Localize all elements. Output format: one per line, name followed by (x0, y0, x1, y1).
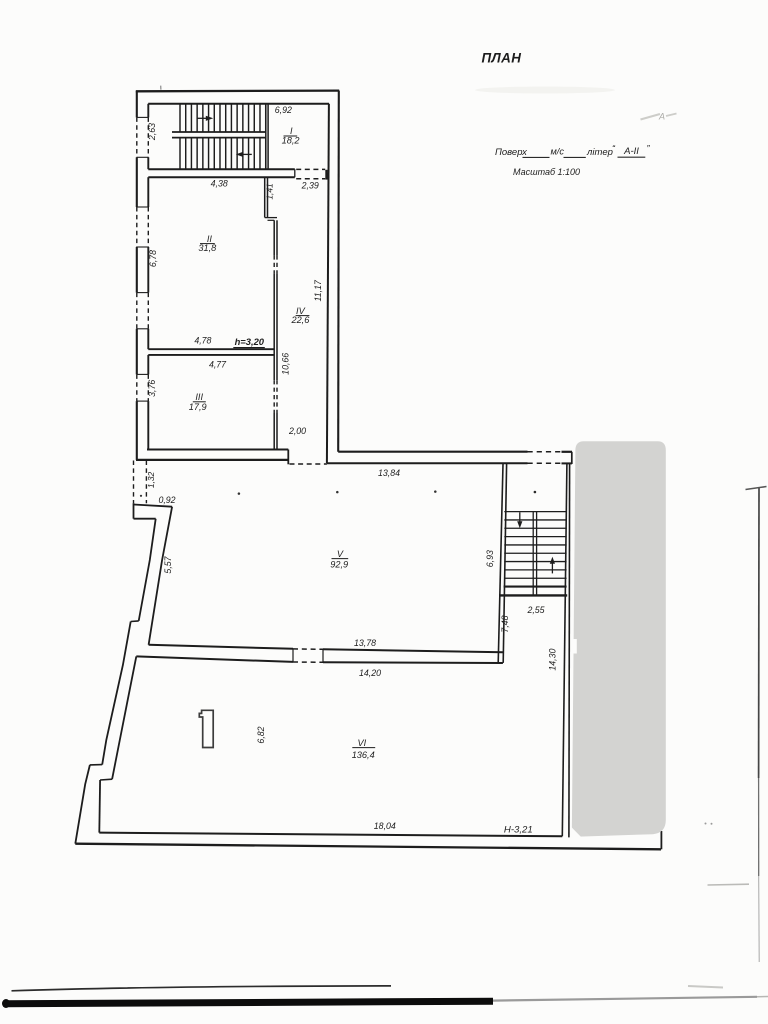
svg-text:м/с: м/с (551, 147, 565, 157)
svg-text:літер: літер (586, 147, 613, 158)
svg-text:13,78: 13,78 (354, 638, 376, 648)
svg-text:4,77: 4,77 (209, 359, 227, 369)
svg-text:31,8: 31,8 (198, 243, 217, 253)
svg-text:1,32: 1,32 (146, 472, 156, 489)
svg-text:2,55: 2,55 (526, 605, 544, 615)
svg-text:А: А (658, 112, 665, 122)
svg-text:V: V (337, 549, 344, 559)
svg-text:92,9: 92,9 (330, 560, 348, 570)
svg-text:”: ” (647, 144, 651, 154)
svg-text:h=3,20: h=3,20 (235, 336, 265, 347)
svg-text:ПЛАН: ПЛАН (482, 51, 522, 66)
svg-text:Масштаб 1:100: Масштаб 1:100 (513, 167, 580, 177)
svg-text:14,20: 14,20 (359, 668, 381, 678)
svg-text:2,63: 2,63 (147, 123, 157, 141)
svg-text:2,39: 2,39 (301, 180, 319, 190)
svg-text:2,00: 2,00 (288, 426, 306, 436)
svg-text:18,2: 18,2 (282, 136, 300, 146)
svg-text:22,6: 22,6 (290, 315, 310, 325)
svg-text:14,30: 14,30 (548, 648, 558, 670)
svg-text:А-ІІ: А-ІІ (623, 146, 639, 157)
svg-text:III: III (195, 392, 203, 402)
svg-text:6,78: 6,78 (148, 250, 158, 267)
svg-text:6,82: 6,82 (256, 726, 266, 743)
svg-text:4,78: 4,78 (194, 336, 211, 346)
svg-text:7,48: 7,48 (500, 615, 510, 632)
svg-text:5,57: 5,57 (163, 555, 173, 573)
svg-text:0,92: 0,92 (158, 495, 175, 505)
svg-text:Поверх: Поверх (495, 147, 528, 158)
svg-text:6,93: 6,93 (485, 550, 495, 567)
svg-text:11,17: 11,17 (313, 279, 323, 301)
svg-text:10,66: 10,66 (281, 353, 291, 375)
svg-text:136,4: 136,4 (352, 750, 375, 760)
svg-text:18,04: 18,04 (374, 821, 396, 831)
svg-text:1,41: 1,41 (265, 183, 275, 199)
svg-text:17,9: 17,9 (189, 402, 207, 412)
svg-text:3,76: 3,76 (147, 380, 157, 397)
svg-text:“: “ (612, 144, 616, 154)
svg-text:VI: VI (357, 738, 366, 748)
svg-text:13,84: 13,84 (378, 468, 400, 478)
svg-text:Н-3,21: Н-3,21 (504, 825, 533, 836)
svg-text:4,38: 4,38 (211, 179, 228, 189)
svg-text:6,92: 6,92 (275, 105, 292, 115)
